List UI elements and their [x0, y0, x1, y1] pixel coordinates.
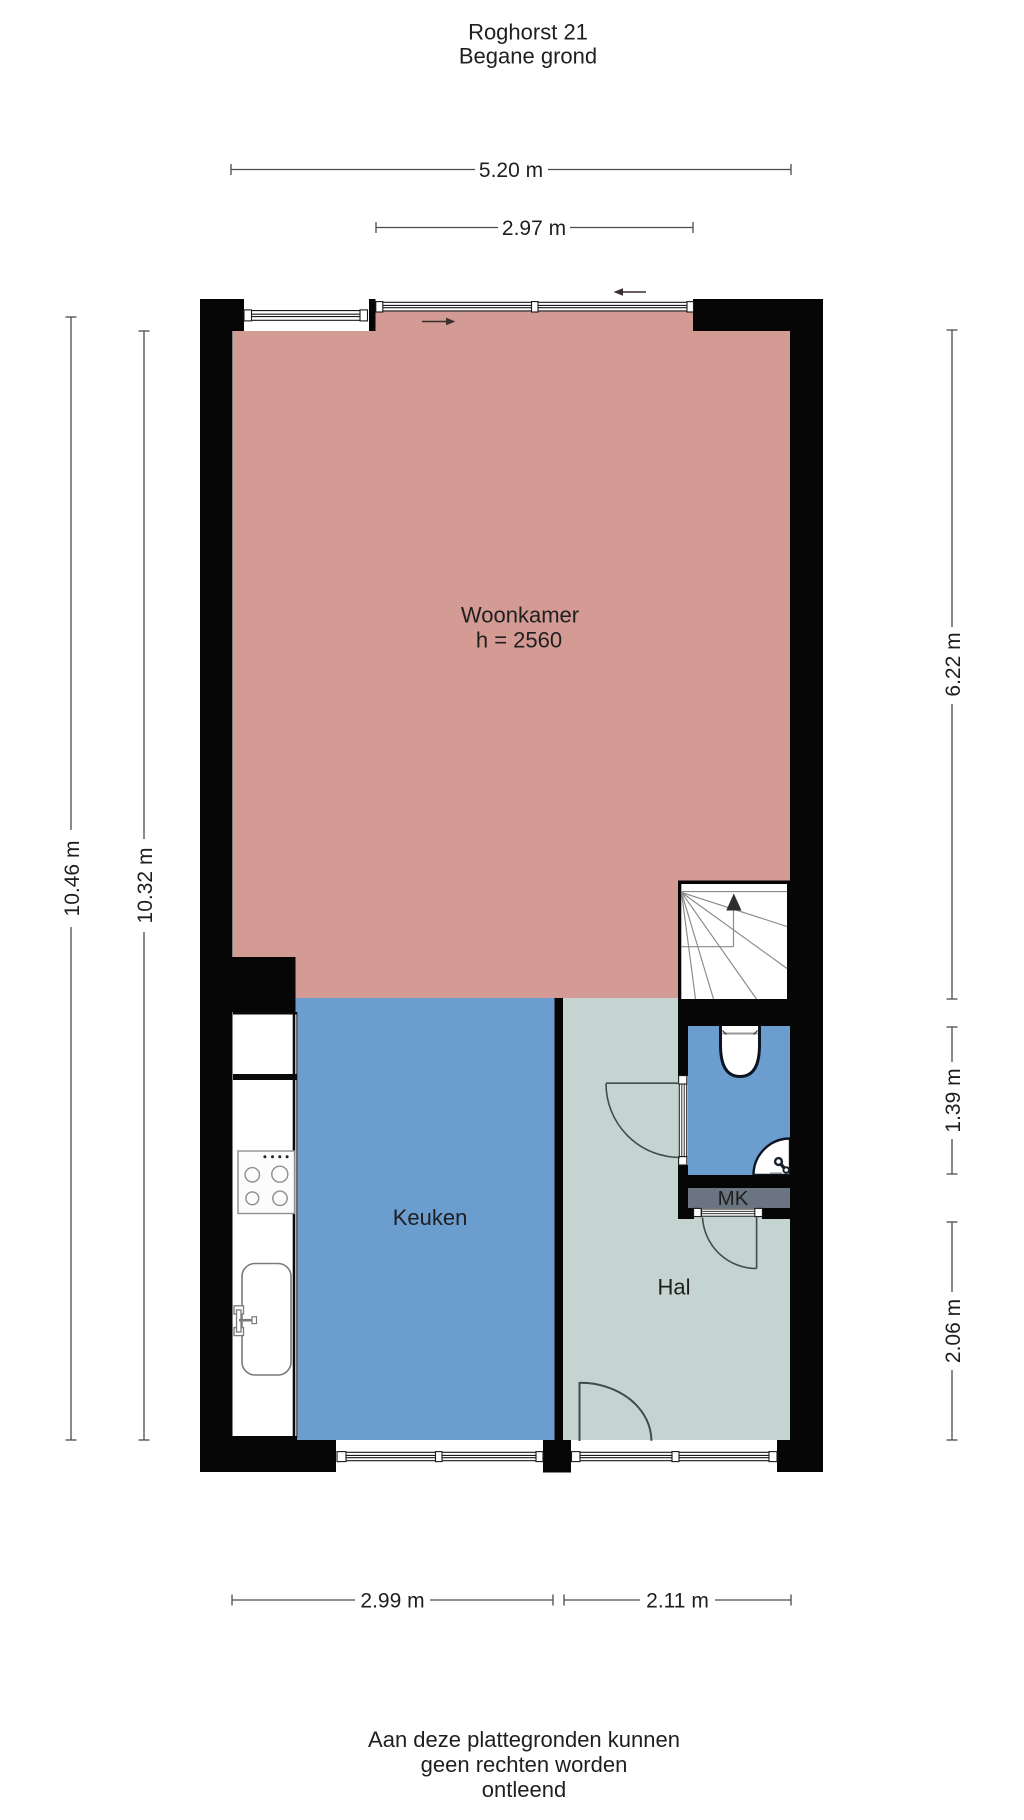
svg-text:h = 2560: h = 2560 [476, 628, 562, 653]
svg-text:Hal: Hal [657, 1275, 690, 1300]
svg-text:1.39 m: 1.39 m [942, 1068, 965, 1132]
svg-text:10.32 m: 10.32 m [134, 848, 157, 924]
svg-text:5.20 m: 5.20 m [479, 159, 543, 182]
svg-text:Woonkamer: Woonkamer [461, 603, 579, 628]
svg-text:Roghorst 21: Roghorst 21 [468, 20, 588, 45]
svg-text:2.11 m: 2.11 m [646, 1590, 709, 1613]
svg-text:Keuken: Keuken [393, 1205, 468, 1230]
svg-text:2.97 m: 2.97 m [502, 217, 566, 240]
svg-text:6.22 m: 6.22 m [942, 632, 965, 696]
svg-text:MK: MK [718, 1187, 749, 1210]
svg-text:2.06 m: 2.06 m [942, 1299, 965, 1363]
svg-text:2.99 m: 2.99 m [360, 1590, 424, 1613]
svg-text:10.46 m: 10.46 m [61, 841, 84, 917]
svg-text:ontleend: ontleend [482, 1777, 566, 1802]
svg-text:Begane grond: Begane grond [459, 44, 597, 69]
svg-text:Aan deze plattegronden kunnen: Aan deze plattegronden kunnen [368, 1727, 680, 1752]
svg-text:geen rechten worden: geen rechten worden [421, 1752, 628, 1777]
